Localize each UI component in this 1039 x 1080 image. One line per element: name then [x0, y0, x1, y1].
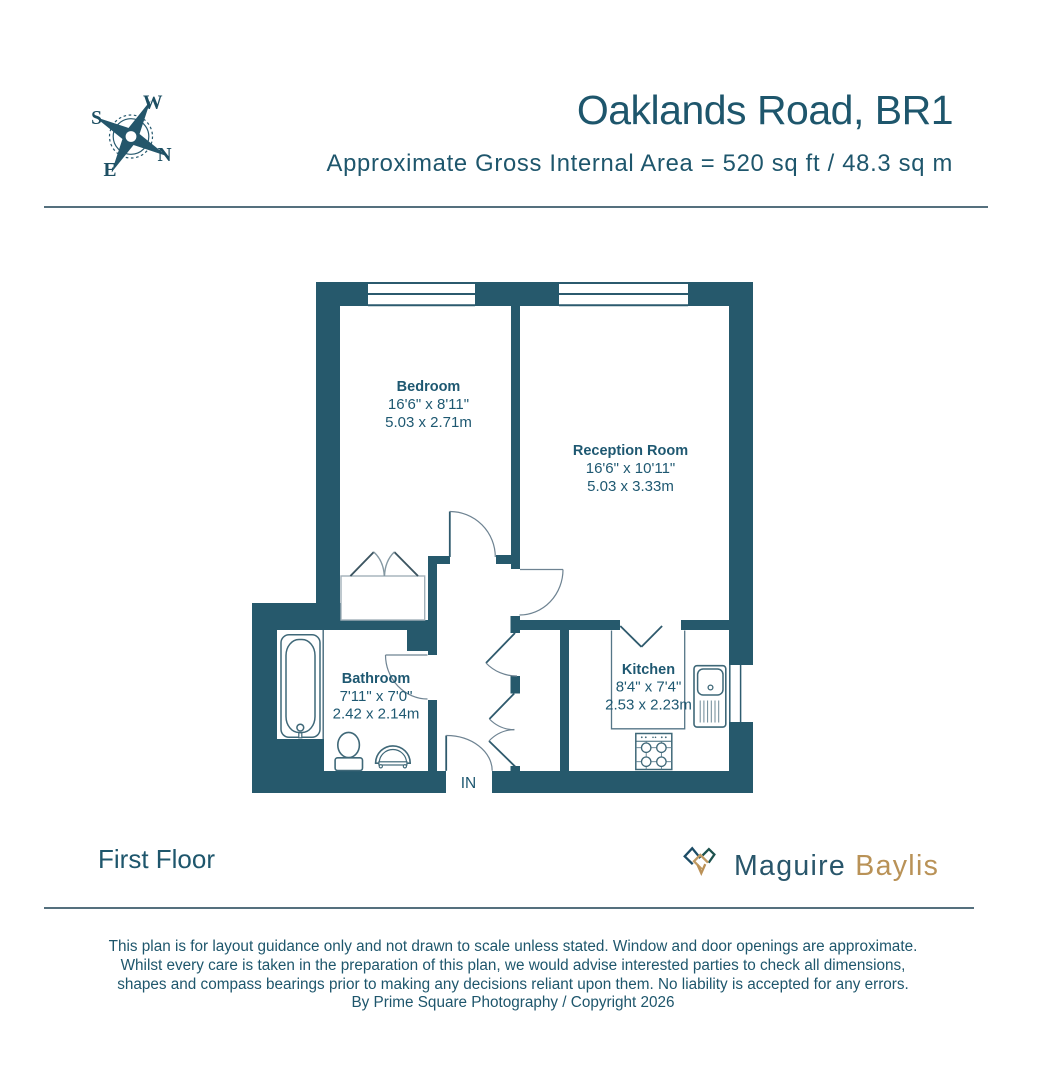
svg-text:Kitchen: Kitchen [622, 662, 675, 678]
svg-text:16'6" x 10'11": 16'6" x 10'11" [586, 460, 676, 477]
svg-text:5.03 x 3.33m: 5.03 x 3.33m [587, 478, 674, 495]
svg-text:2.53 x 2.23m: 2.53 x 2.23m [605, 697, 692, 714]
svg-text:Bedroom: Bedroom [397, 379, 461, 395]
svg-text:2.42 x 2.14m: 2.42 x 2.14m [333, 706, 420, 723]
svg-text:IN: IN [461, 775, 477, 792]
svg-text:16'6" x 8'11": 16'6" x 8'11" [388, 396, 469, 413]
svg-text:Reception Room: Reception Room [573, 443, 688, 459]
svg-text:Bathroom: Bathroom [342, 671, 410, 687]
svg-text:8'4" x 7'4": 8'4" x 7'4" [616, 679, 682, 696]
svg-text:5.03 x 2.71m: 5.03 x 2.71m [385, 414, 472, 431]
svg-text:7'11" x 7'0": 7'11" x 7'0" [340, 688, 413, 705]
